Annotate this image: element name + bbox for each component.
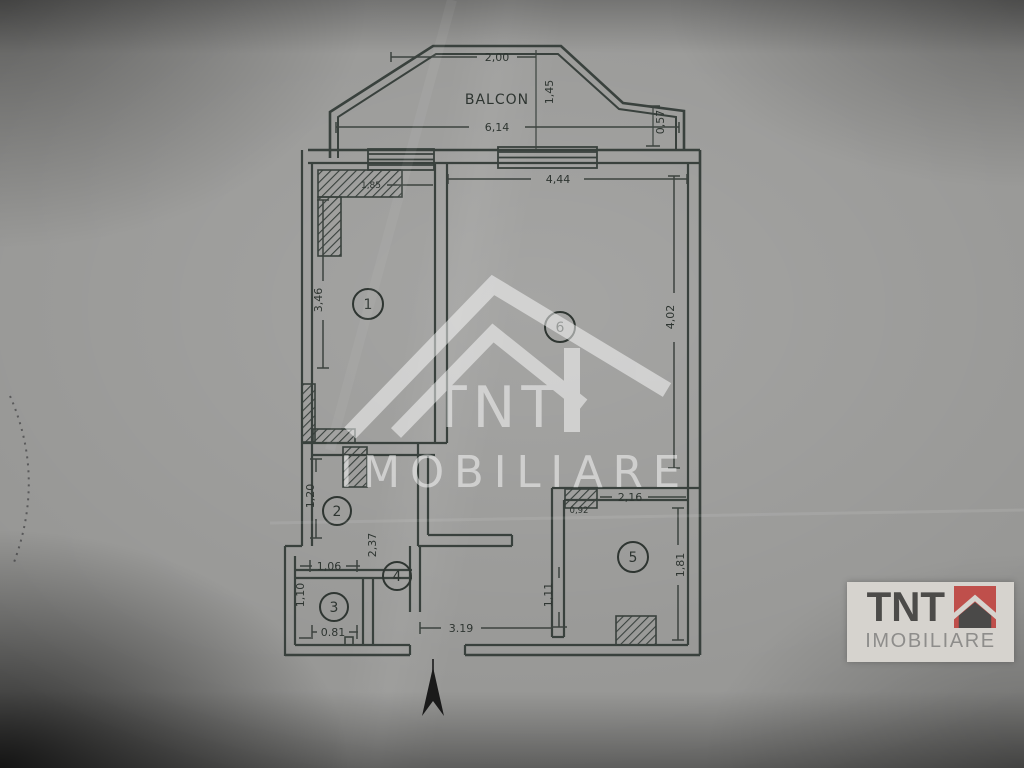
dim-closet-width: 1,85: [361, 181, 381, 191]
room-3-label: 3: [320, 593, 348, 621]
room-3-number: 3: [330, 600, 339, 616]
logo-top-row: TNT: [865, 585, 997, 629]
hatch-block: [318, 197, 341, 256]
dim-room6-length: 4,02: [664, 305, 677, 330]
dim-entry-door-width: 0.81: [321, 626, 346, 639]
dim-balcony-width: 6,14: [485, 121, 510, 134]
room-2-number: 2: [333, 504, 342, 520]
logo-brand: TNT: [866, 585, 944, 629]
logo-house-icon: [954, 586, 996, 628]
dim-balcony-top-width: 2,00: [485, 51, 510, 64]
dim-hall-length: 2,37: [366, 533, 379, 558]
room-5-number: 5: [629, 550, 638, 566]
watermark-subtitle: IMOBILIARE: [340, 447, 690, 498]
dim-kitchen-side: 1,81: [674, 553, 687, 578]
north-arrow-icon: [422, 659, 444, 716]
room-4-label: 4: [383, 562, 411, 590]
dim-vestibule-width: 1,06: [317, 560, 342, 573]
window-strip: [368, 149, 434, 170]
watermark: TNT IMOBILIARE: [340, 285, 690, 498]
dim-balcony-depth: 1,45: [543, 80, 556, 105]
page-bleed-arc: [10, 396, 29, 565]
photo-background: BALCON 2,00 1,45 6,14 0,57 4,44 1,85 3,4…: [0, 0, 1024, 768]
room-5-label: 5: [618, 542, 648, 572]
logo-subtitle: IMOBILIARE: [865, 630, 995, 652]
dim-hall-width: 3.19: [449, 622, 474, 635]
dim-hall-side: 1,11: [542, 583, 555, 608]
dim-room2-length: 1,20: [304, 484, 317, 509]
door-jamb: [345, 637, 353, 645]
dim-room1-length: 3,46: [312, 288, 325, 313]
balcony-label: BALCON: [465, 92, 529, 108]
dim-bath-length: 1,10: [294, 583, 307, 608]
watermark-brand: TNT: [431, 375, 562, 441]
dim-balcony-side-offset: 0,57: [654, 110, 667, 135]
agency-logo-card: TNT IMOBILIARE: [847, 582, 1014, 662]
room-4-number: 4: [393, 569, 402, 585]
dim-living-top-width: 4,44: [546, 173, 571, 186]
hatch-block: [616, 616, 656, 645]
dim-kitchen-niche: 0,92: [570, 506, 589, 516]
